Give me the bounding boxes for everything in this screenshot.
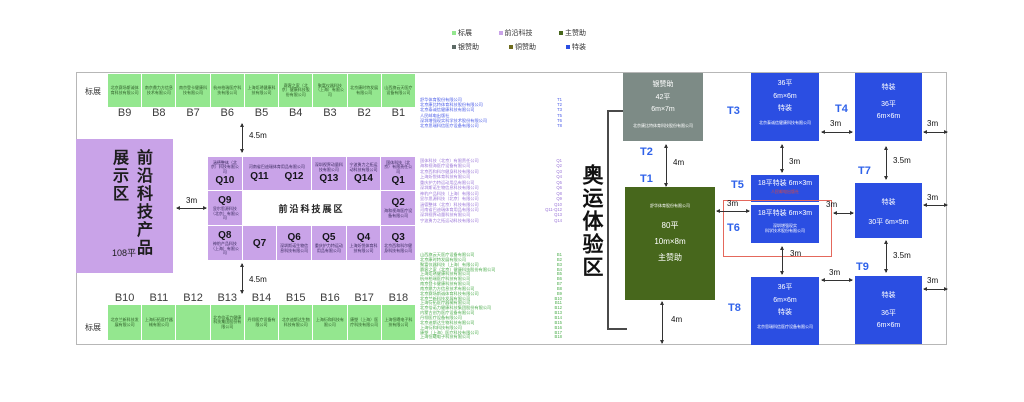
dimension-arrow (924, 132, 947, 133)
booth-code: Q7 (253, 238, 266, 249)
dimension-arrow (782, 247, 783, 274)
dimension-label: 4.5m (249, 131, 267, 140)
booth-t9: 特装 36平 6m×6m (855, 276, 922, 344)
booth-column: 山西旗云天医疗设备有限公司 B1 (382, 74, 415, 120)
frontier-title-line: 前沿科技 (134, 149, 151, 221)
standard-booth: 北京兰新科技发展有限公司 (108, 305, 141, 340)
booth-code: Q6 (556, 185, 562, 190)
booth-code: Q10 (215, 175, 234, 186)
directory-row: 宁波勇力之拓运动科技有限公司Q14 (420, 218, 562, 223)
booth-column: 赛客之家（北京）健康科技股份有限公司 B4 (279, 74, 312, 120)
booth-code: T8 (557, 123, 562, 128)
booth-code: Q3 (556, 169, 562, 174)
standard-booth: 赛客之家（北京）健康科技股份有限公司 (279, 74, 312, 107)
booth-column: 南京登卡健康科技有限公司 B7 (176, 74, 209, 120)
booth-column: 聚富仪器科技（上海）有限公司 B3 (313, 74, 346, 120)
booth-line: 30平 6m×5m (855, 217, 922, 230)
booth-company: 显尔思源科技（北京）有限公司 (208, 207, 242, 221)
booth-line: 42平 (623, 92, 703, 105)
dimension-label: 3.5m (893, 156, 911, 165)
legend-label: 标展 (458, 28, 472, 38)
dimension-label: 3m (789, 157, 800, 166)
olympic-zone-title: 奥运体验区 (576, 164, 606, 279)
booth-q2: Q2海和视海医疗设备有限公司 (381, 191, 415, 225)
booth-code: B15 (279, 292, 312, 305)
booth-t5: 18平特装 6m×3m 人民邮电出版社 (751, 175, 819, 202)
standard-booth: 康塑（上海）医疗科技有限公司 (348, 305, 381, 340)
booth-t4: 特装 36平 6m×6m (855, 73, 922, 141)
booth-company: 北京迪斯达生物科技有限公司 (279, 318, 312, 327)
booth-code: B7 (176, 107, 209, 120)
booth-q4: Q4上海炘悦体育科技有限公司 (347, 226, 381, 260)
standard-booth: 杭州柏瑞医疗科技有限公司 (211, 74, 244, 107)
standard-booth-row-top: 北京赛场斯诚体育科技有限公司 B9 南京鼎力方信息技术有限公司 B8 南京登卡健… (108, 74, 415, 120)
dimension-label: 4.5m (249, 275, 267, 284)
dimension-arrow (834, 213, 853, 214)
main-sponsor-swatch-icon (559, 31, 563, 35)
booth-label-t5: T5 (731, 179, 744, 191)
booth-company: 上海衍和科技有限公司 (313, 318, 346, 327)
standard-booth: 上海炬琇健康科技有限公司 (245, 74, 278, 107)
booth-company: 山西旗云天医疗设备有限公司 (382, 86, 415, 95)
legend: 标展 前沿科技 主赞助 银赞助 铜赞助 特装 (452, 28, 586, 56)
legend-item-frontier: 前沿科技 (499, 28, 533, 38)
frontier-product-zone: 前沿科技产品展示区 108平 (76, 139, 173, 273)
booth-column: B18 上海恒曦电子科技有限公司 (382, 292, 415, 340)
frontier-booth-grid: 涵德整体（北京）科技有限公司Q10 河南省巴迪瑞体育用品有限公司Q11Q12 深… (208, 157, 415, 260)
booth-code: B18 (382, 292, 415, 305)
booth-code: Q14 (554, 218, 562, 223)
dimension-label: 3m (830, 119, 841, 128)
booth-q9: Q9显尔思源科技（北京）有限公司 (208, 191, 242, 225)
booth-column: B12 (176, 292, 209, 340)
booth-company: 舒华体育股份有限公司 (625, 203, 715, 208)
booth-code: B1 (382, 107, 415, 120)
booth-code: Q11 (250, 171, 268, 182)
booth-line: 80平 (625, 218, 715, 234)
booth-code: Q2 (556, 163, 562, 168)
booth-code: Q10 (554, 202, 562, 207)
booth-code: Q6 (287, 232, 300, 243)
booth-column: B10 北京兰新科技发展有限公司 (108, 292, 141, 340)
dimension-label: 3.5m (893, 251, 911, 260)
booth-code: Q13 (554, 212, 562, 217)
dimension-arrow (822, 280, 852, 281)
booth-line: 18平特装 6m×3m (751, 179, 819, 189)
dimension-arrow (822, 132, 852, 133)
booth-company: 北京西和科尔健身科技有限公司 (381, 244, 415, 253)
standard-zone-label-top: 标展 (85, 86, 101, 97)
company-name: 宁波勇力之拓运动科技有限公司 (420, 218, 479, 224)
booth-q10: 涵德整体（北京）科技有限公司Q10 (208, 157, 242, 190)
booth-code: B10 (108, 292, 141, 305)
booth-company: 南京登卡健康科技有限公司 (176, 86, 209, 95)
dimension-label: 3m (927, 119, 938, 128)
booth-code: Q8 (556, 191, 562, 196)
directory-b-list: 山西旗云天医疗设备有限公司B1北京康时特发展有限公司B2聚富仪器科技（上海）有限… (420, 252, 562, 339)
dimension-label: 3m (790, 249, 801, 258)
booth-code: Q1 (556, 158, 562, 163)
legend-item-main-sponsor: 主赞助 (559, 28, 586, 38)
booth-code: Q9 (556, 196, 562, 201)
booth-code: B8 (142, 107, 175, 120)
booth-code: Q14 (354, 173, 373, 184)
standard-booth: 山西旗云天医疗设备有限公司 (382, 74, 415, 107)
directory-row: 上海恒曦电子科技有限公司B18 (420, 334, 562, 339)
dimension-label: 3m (927, 193, 938, 202)
standard-booth: 南京登卡健康科技有限公司 (176, 74, 209, 107)
company-name: 上海恒曦电子科技有限公司 (420, 334, 470, 340)
booth-q1: 国体科技（北京）有限责任公司Q1 (381, 157, 415, 190)
standard-booth: 北京倍诺力健康科技集团股份有限公司 (211, 305, 244, 340)
booth-company: 海和视海医疗设备有限公司 (381, 209, 415, 218)
silver-sponsor-swatch-icon (452, 45, 456, 49)
booth-company: 上海衍拓医疗器械有限公司 (142, 318, 175, 327)
booth-column: 南京鼎力方信息技术有限公司 B8 (142, 74, 175, 120)
booth-label-t7: T7 (858, 165, 871, 177)
standard-booth: 丹翎医疗设备有限公司 (245, 305, 278, 340)
company-name: 北京思瑞科信医疗设备有限公司 (420, 123, 479, 129)
legend-item-bronze-sponsor: 铜赞助 (509, 42, 536, 52)
standard-booth: 北京赛场斯诚体育科技有限公司 (108, 74, 141, 107)
booth-label-t3: T3 (727, 105, 740, 117)
booth-column: B13 北京倍诺力健康科技集团股份有限公司 (211, 292, 244, 340)
booth-column: B16 上海衍和科技有限公司 (313, 292, 346, 340)
booth-code: B14 (245, 292, 278, 305)
booth-line: 主赞助 (625, 250, 715, 266)
booth-code: Q5 (322, 232, 335, 243)
main-sponsor-booth: 舒华体育股份有限公司 80平 10m×8m 主赞助 (625, 187, 715, 300)
standard-booth: 上海衍和科技有限公司 (313, 305, 346, 340)
booth-line: 6m×6m (751, 295, 819, 308)
booth-code: Q5 (556, 180, 562, 185)
booth-code: B2 (348, 107, 381, 120)
standard-booth (176, 305, 209, 340)
dimension-arrow (782, 145, 783, 172)
dimension-arrow (886, 241, 887, 272)
dimension-label: 4m (671, 315, 682, 324)
booth-t7: 特装 30平 6m×5m (855, 183, 922, 238)
booth-q8: Q8神豹产品科技（上海）有限公司 (208, 226, 242, 260)
booth-t8: 36平 6m×6m 特装 北京思瑞科信医疗设备有限公司 (751, 277, 819, 345)
dimension-arrow (924, 205, 947, 206)
booth-code: Q2 (391, 197, 404, 208)
booth-company: 北京兰新科技发展有限公司 (108, 318, 141, 327)
dimension-label: 3m (829, 268, 840, 277)
booth-code: Q9 (218, 195, 231, 206)
standard-booth: 聚富仪器科技（上海）有限公司 (313, 74, 346, 107)
booth-code: B12 (176, 292, 209, 305)
booth-code: Q8 (218, 230, 231, 241)
dimension-arrow (924, 289, 947, 290)
booth-column: B17 康塑（上海）医疗科技有限公司 (348, 292, 381, 340)
booth-column: B14 丹翎医疗设备有限公司 (245, 292, 278, 340)
booth-company: 北京康时特发展有限公司 (348, 86, 381, 95)
booth-company: 神豹产品科技（上海）有限公司 (208, 242, 242, 256)
booth-company: 重庆护力特运动用品有限公司 (312, 244, 346, 253)
booth-label-t1: T1 (640, 173, 653, 185)
booth-column: 北京康时特发展有限公司 B2 (348, 74, 381, 120)
booth-company: 赛客之家（北京）健康科技股份有限公司 (279, 84, 312, 98)
legend-label: 主赞助 (565, 28, 586, 38)
bronze-sponsor-swatch-icon (509, 45, 513, 49)
booth-column: B15 北京迪斯达生物科技有限公司 (279, 292, 312, 340)
standard-booth: 南京鼎力方信息技术有限公司 (142, 74, 175, 107)
booth-code: Q13 (319, 173, 338, 184)
booth-line: 6m×6m (751, 91, 819, 104)
legend-item-special: 特装 (566, 42, 586, 52)
booth-company: 宁波勇力之拓运动科技有限公司 (347, 163, 381, 172)
standard-booth: 北京康时特发展有限公司 (348, 74, 381, 107)
legend-row: 标展 前沿科技 主赞助 (452, 28, 586, 38)
directory-t-list: 舒华体育股份有限公司T1北京康比特体育科技股份有限公司T2北京泰诚信健康科技有限… (420, 97, 562, 128)
booth-company: 南京鼎力方信息技术有限公司 (142, 86, 175, 95)
dimension-arrow (177, 208, 206, 209)
booth-line: 特装 (855, 290, 922, 303)
booth-company: 北京思瑞科信医疗设备有限公司 (751, 324, 819, 329)
booth-q14: 宁波勇力之拓运动科技有限公司Q14 (347, 157, 381, 190)
booth-label-t2: T2 (640, 146, 653, 158)
legend-item-standard: 标展 (452, 28, 472, 38)
booth-company: 杭州柏瑞医疗科技有限公司 (211, 86, 244, 95)
zone-bracket (607, 110, 627, 330)
booth-q6: Q6深圳斯诺生物信息科技有限公司 (277, 226, 311, 260)
booth-company: 国体科技（北京）有限责任公司 (381, 161, 415, 175)
exhibition-floorplan: 标展 前沿科技 主赞助 银赞助 铜赞助 特装 标展 标展 北京赛场斯诚体育科技有… (0, 0, 1024, 402)
booth-t3: 36平 6m×6m 特装 北京泰诚信健康科技有限公司 (751, 73, 819, 141)
booth-q3: Q3北京西和科尔健身科技有限公司 (381, 226, 415, 260)
booth-code: Q1 (391, 175, 404, 186)
booth-company: 涵德整体（北京）科技有限公司 (208, 161, 242, 175)
booth-company: 深圳斯诺生物信息科技有限公司 (277, 244, 311, 253)
legend-label: 铜赞助 (515, 42, 536, 52)
booth-line: 36平 (751, 78, 819, 91)
booth-code: B3 (313, 107, 346, 120)
booth-line: 特装 (751, 307, 819, 320)
booth-label-t9: T9 (856, 261, 869, 273)
dimension-label: 4m (673, 158, 684, 167)
booth-code: B17 (348, 292, 381, 305)
booth-column: 杭州柏瑞医疗科技有限公司 B6 (211, 74, 244, 120)
legend-label: 前沿科技 (505, 28, 533, 38)
dimension-label: 3m (826, 200, 837, 209)
booth-line: 36平 (855, 308, 922, 321)
dimension-arrow (662, 302, 663, 343)
booth-code: Q11-Q12 (545, 207, 562, 212)
standard-booth: 上海衍拓医疗器械有限公司 (142, 305, 175, 340)
directory-row: 北京思瑞科信医疗设备有限公司T8 (420, 123, 562, 128)
booth-company: 北京倍诺力健康科技集团股份有限公司 (211, 316, 244, 330)
standard-booth: 上海恒曦电子科技有限公司 (382, 305, 415, 340)
booth-column: 北京赛场斯诚体育科技有限公司 B9 (108, 74, 141, 120)
booth-line: 36平 (751, 282, 819, 295)
booth-line: 10m×8m (625, 234, 715, 250)
booth-code: B18 (555, 334, 562, 339)
booth-code: Q4 (357, 232, 370, 243)
booth-q13: 深圳视界动量科技有限公司Q13 (312, 157, 346, 190)
legend-label: 特装 (572, 42, 586, 52)
booth-company: 人民邮电出版社 (751, 189, 819, 194)
booth-company: 北京赛场斯诚体育科技有限公司 (108, 86, 141, 95)
legend-label: 银赞助 (458, 42, 479, 52)
booth-q7: Q7 (243, 226, 277, 260)
dimension-arrow (666, 145, 667, 186)
booth-code: B11 (142, 292, 175, 305)
booth-company: 上海炬琇健康科技有限公司 (245, 86, 278, 95)
booth-code: B9 (108, 107, 141, 120)
booth-line: 36平 (855, 99, 922, 112)
booth-company: 康塑（上海）医疗科技有限公司 (348, 318, 381, 327)
standard-zone-label-bottom: 标展 (85, 322, 101, 333)
booth-label-t8: T8 (728, 302, 741, 314)
booth-line: 6m×6m (855, 111, 922, 124)
booth-company: 北京康比特体育科技股份有限公司 (623, 123, 703, 128)
highlight-rectangle (723, 200, 832, 257)
booth-code: Q12 (285, 171, 304, 182)
booth-code: B4 (279, 107, 312, 120)
booth-code: B6 (211, 107, 244, 120)
booth-label-t4: T4 (835, 103, 848, 115)
silver-sponsor-booth: 银赞助 42平 6m×7m 北京康比特体育科技股份有限公司 (623, 73, 703, 141)
booth-q5: Q5重庆护力特运动用品有限公司 (312, 226, 346, 260)
booth-code: Q3 (391, 232, 404, 243)
dimension-arrow (242, 124, 243, 152)
dimension-arrow (886, 147, 887, 179)
booth-company: 丹翎医疗设备有限公司 (245, 318, 278, 327)
dimension-label: 3m (927, 276, 938, 285)
legend-row: 银赞助 铜赞助 特装 (452, 42, 586, 52)
frontier-exhibit-area-label: 前沿科技展区 (243, 191, 381, 225)
booth-line: 6m×6m (855, 320, 922, 333)
booth-line: 特装 (855, 82, 922, 95)
booth-company: 深圳视界动量科技有限公司 (312, 163, 346, 172)
special-swatch-icon (566, 45, 570, 49)
booth-code: Q4 (556, 174, 562, 179)
booth-line: 银赞助 (623, 79, 703, 92)
booth-line: 特装 (855, 197, 922, 210)
booth-q11-q12: 河南省巴迪瑞体育用品有限公司Q11Q12 (243, 157, 311, 190)
dimension-arrow (242, 264, 243, 293)
booth-codes: Q11Q12 (250, 171, 303, 182)
frontier-swatch-icon (499, 31, 503, 35)
legend-item-silver-sponsor: 银赞助 (452, 42, 479, 52)
directory-q-list: 国体科技（北京）有限责任公司Q1海和视海医疗设备有限公司Q2北京西和科尔健身科技… (420, 158, 562, 223)
booth-company: 河南省巴迪瑞体育用品有限公司 (247, 165, 307, 170)
booth-code: B5 (245, 107, 278, 120)
booth-line: 特装 (751, 103, 819, 116)
booth-company: 北京泰诚信健康科技有限公司 (751, 120, 819, 125)
dimension-arrow (717, 211, 749, 212)
standard-swatch-icon (452, 31, 456, 35)
booth-column: B11 上海衍拓医疗器械有限公司 (142, 292, 175, 340)
frontier-zone-area: 108平 (112, 246, 136, 259)
booth-code: B16 (313, 292, 346, 305)
dimension-label: 3m (727, 199, 738, 208)
standard-booth-row-bottom: B10 北京兰新科技发展有限公司 B11 上海衍拓医疗器械有限公司 B12 B1… (108, 292, 415, 340)
standard-booth: 北京迪斯达生物科技有限公司 (279, 305, 312, 340)
dimension-label: 3m (186, 196, 197, 205)
booth-company: 上海恒曦电子科技有限公司 (382, 318, 415, 327)
booth-company: 聚富仪器科技（上海）有限公司 (313, 84, 346, 98)
booth-line: 6m×7m (623, 104, 703, 117)
booth-company: 上海炘悦体育科技有限公司 (347, 244, 381, 253)
booth-column: 上海炬琇健康科技有限公司 B5 (245, 74, 278, 120)
